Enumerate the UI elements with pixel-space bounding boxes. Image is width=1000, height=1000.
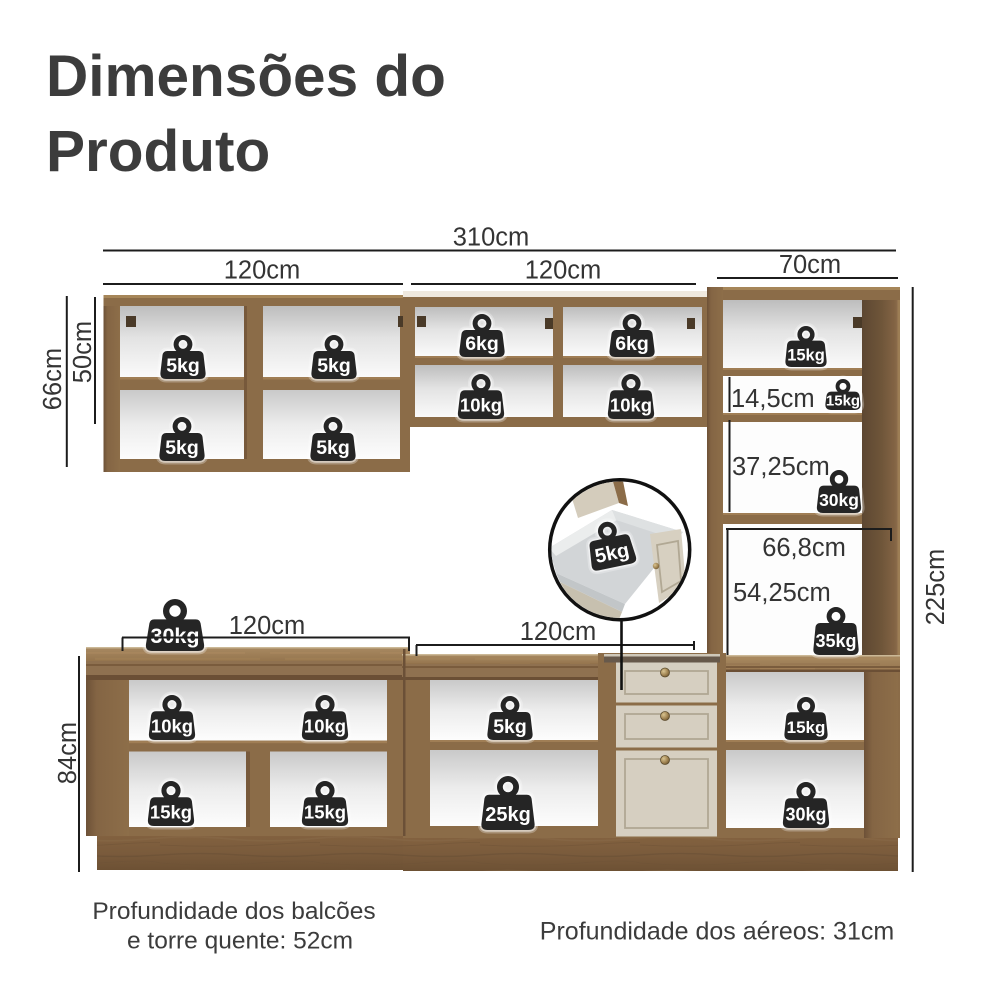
svg-text:Dimensões do: Dimensões do xyxy=(46,44,446,109)
svg-text:120cm: 120cm xyxy=(229,612,306,640)
svg-text:10kg: 10kg xyxy=(460,395,502,416)
svg-text:Profundidade dos balcões: Profundidade dos balcões xyxy=(92,898,375,925)
svg-text:Profundidade dos aéreos: 31cm: Profundidade dos aéreos: 31cm xyxy=(540,918,894,946)
svg-text:225cm: 225cm xyxy=(922,549,950,626)
svg-text:Produto: Produto xyxy=(46,119,270,184)
svg-text:15kg: 15kg xyxy=(826,392,860,409)
svg-text:84cm: 84cm xyxy=(54,722,82,784)
svg-text:35kg: 35kg xyxy=(815,631,856,651)
svg-text:15kg: 15kg xyxy=(787,346,825,364)
svg-text:15kg: 15kg xyxy=(787,718,826,737)
svg-text:10kg: 10kg xyxy=(304,716,346,737)
svg-text:6kg: 6kg xyxy=(615,333,649,355)
svg-text:14,5cm: 14,5cm xyxy=(731,385,815,413)
svg-text:6kg: 6kg xyxy=(465,333,499,355)
svg-text:30kg: 30kg xyxy=(819,490,859,510)
svg-text:15kg: 15kg xyxy=(150,802,192,823)
svg-text:5kg: 5kg xyxy=(166,355,200,377)
svg-text:30kg: 30kg xyxy=(785,804,826,824)
svg-text:70cm: 70cm xyxy=(779,251,841,279)
svg-text:10kg: 10kg xyxy=(610,395,652,416)
svg-text:37,25cm: 37,25cm xyxy=(732,453,830,481)
svg-text:30kg: 30kg xyxy=(150,624,199,648)
svg-text:310cm: 310cm xyxy=(453,224,530,252)
svg-text:120cm: 120cm xyxy=(224,257,301,285)
svg-text:54,25cm: 54,25cm xyxy=(733,579,831,607)
svg-text:120cm: 120cm xyxy=(525,257,602,285)
svg-text:5kg: 5kg xyxy=(493,716,527,738)
svg-text:50cm: 50cm xyxy=(69,321,97,383)
svg-text:5kg: 5kg xyxy=(317,355,351,377)
svg-text:10kg: 10kg xyxy=(151,716,193,737)
svg-text:15kg: 15kg xyxy=(304,802,346,823)
svg-text:120cm: 120cm xyxy=(520,618,597,646)
svg-text:66,8cm: 66,8cm xyxy=(762,534,846,562)
svg-text:5kg: 5kg xyxy=(316,437,350,459)
svg-text:25kg: 25kg xyxy=(485,804,531,826)
svg-text:e torre quente: 52cm: e torre quente: 52cm xyxy=(127,928,353,955)
svg-text:5kg: 5kg xyxy=(165,437,199,459)
svg-text:66cm: 66cm xyxy=(39,348,67,410)
